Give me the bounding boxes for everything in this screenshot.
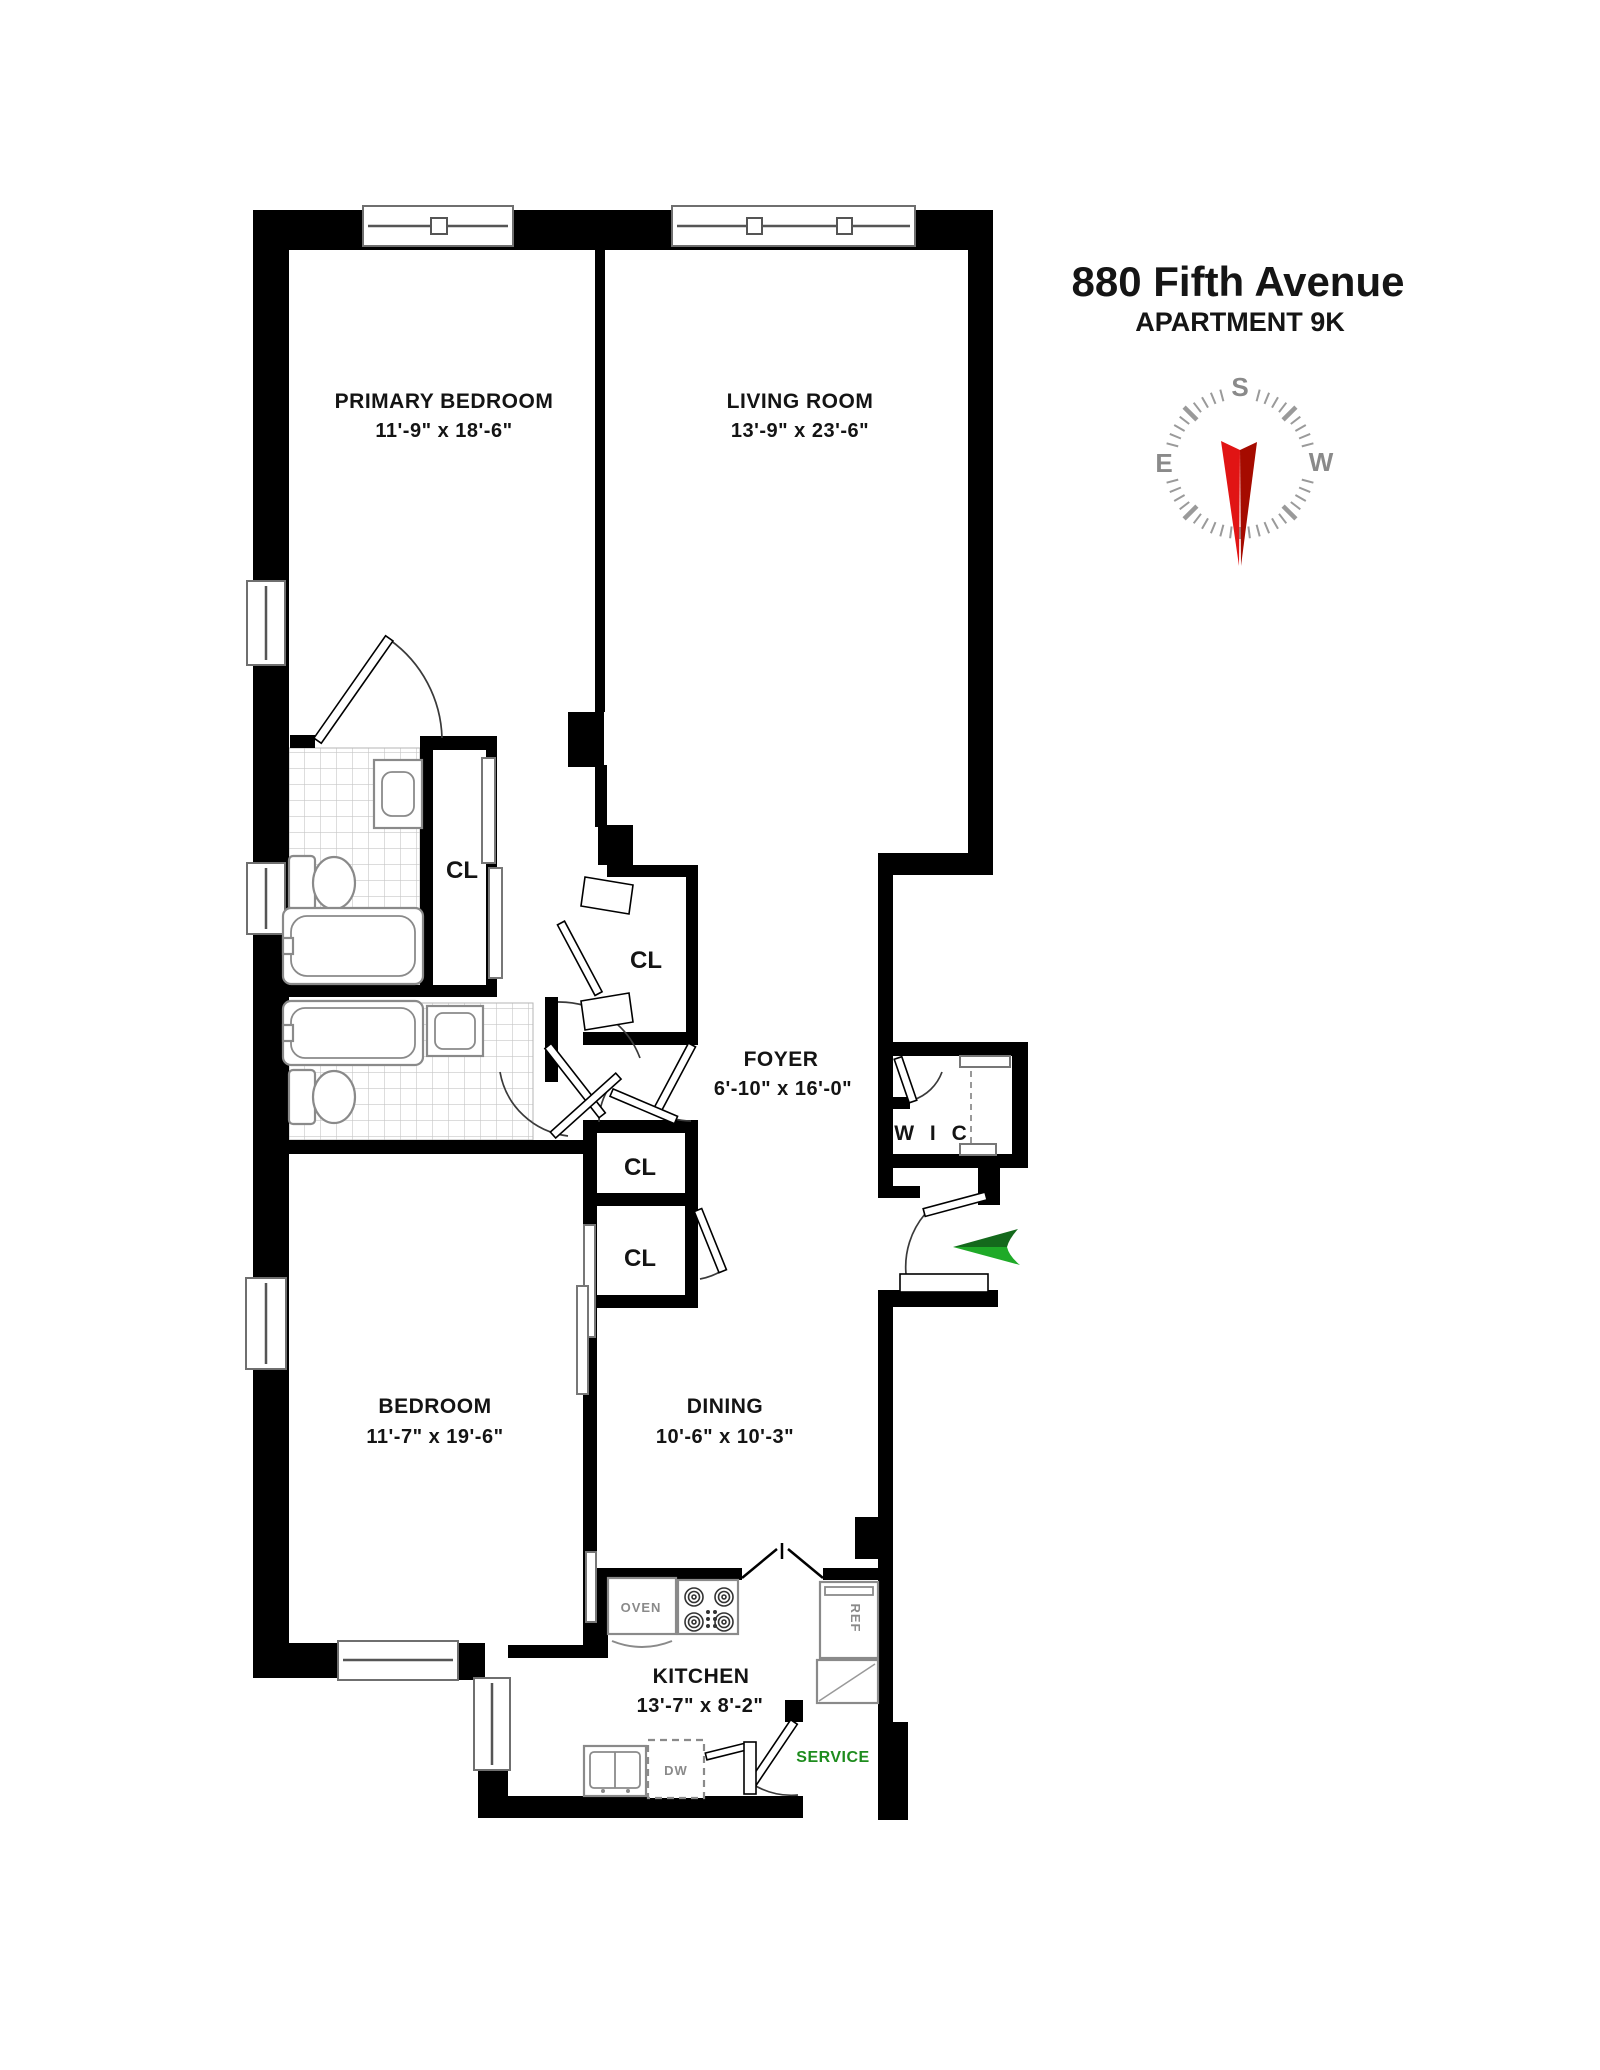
closet-shelf — [960, 1056, 1010, 1067]
cabinet-door-leaf — [705, 1743, 747, 1760]
ref-label: REF — [848, 1604, 863, 1633]
compass-tick — [1170, 488, 1181, 493]
compass-rose-icon: S E W — [1155, 372, 1333, 566]
entry-arrow-dark-half — [953, 1229, 1018, 1247]
bedroom-label: BEDROOM — [378, 1395, 491, 1418]
kitchen-double-doors — [742, 1543, 823, 1578]
compass-tick — [1291, 417, 1301, 424]
bedroom-dims: 11'-7" x 19'-6" — [366, 1426, 503, 1448]
compass-tick — [1174, 495, 1184, 501]
compass-tick — [1180, 502, 1190, 509]
oven-handle — [612, 1641, 672, 1647]
closet-sliding-panel — [489, 868, 502, 978]
compass-tick — [1295, 425, 1305, 431]
compass-tick — [1302, 443, 1314, 446]
foyer-door-leaf — [652, 1043, 696, 1116]
compass-tick — [1265, 393, 1270, 404]
closet-shelf — [960, 1144, 996, 1155]
compass-tick — [1220, 390, 1223, 402]
compass-tick — [1194, 403, 1201, 413]
sink-faucet-dot — [601, 1789, 605, 1793]
compass-tick — [1184, 407, 1197, 420]
kitchen-label: KITCHEN — [653, 1665, 750, 1688]
compass-tick — [1279, 403, 1286, 413]
wic-door-leaf — [894, 1057, 917, 1103]
compass-needle-dark — [1240, 442, 1257, 566]
compass-west-label: W — [1309, 447, 1334, 477]
window-bottom-bedroom — [338, 1641, 458, 1680]
window-left-primary-bedroom — [247, 581, 285, 665]
bedroom-sliding-panel — [586, 1552, 596, 1622]
compass-tick — [1211, 393, 1216, 404]
closet-door-leaf — [557, 921, 602, 995]
kitchen-dims: 13'-7" x 8'-2" — [637, 1695, 764, 1717]
compass-tick — [1279, 514, 1286, 524]
dw-label: DW — [664, 1763, 688, 1778]
closet-bifold-label: CL — [630, 947, 662, 974]
compass-tick — [1202, 518, 1208, 528]
toilet-tank — [289, 856, 315, 910]
bedroom-sliding-panel — [577, 1286, 588, 1394]
compass-tick — [1272, 518, 1278, 528]
sink-faucet-dot — [626, 1789, 630, 1793]
compass-tick — [1295, 495, 1305, 501]
sliding-door-panels — [482, 758, 596, 1622]
page-title: 880 Fifth Avenue — [1072, 258, 1405, 305]
compass-tick — [1299, 488, 1310, 493]
window-top-primary-bedroom — [363, 206, 513, 246]
entry-arrow-light-half — [953, 1247, 1020, 1265]
window-left-bedroom — [246, 1278, 286, 1369]
closet-upper-label: CL — [624, 1154, 656, 1181]
compass-south-label: S — [1231, 372, 1248, 402]
page-subtitle: APARTMENT 9K — [1135, 307, 1345, 337]
compass-tick — [1257, 525, 1260, 537]
primary-bedroom-dims: 11'-9" x 18'-6" — [375, 420, 512, 442]
window-left-bathroom — [247, 863, 285, 934]
bathroom1-door-leaf — [314, 636, 393, 744]
foyer-label: FOYER — [744, 1048, 819, 1071]
living-room-dims: 13'-9" x 23'-6" — [731, 420, 869, 442]
toilet-bowl — [313, 1071, 355, 1123]
toilet-bowl — [313, 857, 355, 909]
compass-tick — [1283, 506, 1296, 519]
window-mullion — [747, 218, 762, 234]
primary-bedroom-label: PRIMARY BEDROOM — [335, 390, 554, 413]
compass-tick — [1299, 434, 1310, 439]
closet-lower-door-leaf — [694, 1209, 726, 1273]
compass-tick — [1167, 443, 1179, 446]
oven-label: OVEN — [621, 1600, 662, 1615]
compass-tick — [1170, 434, 1181, 439]
bathtub-faucet — [283, 1025, 293, 1041]
toilet-tank — [289, 1070, 315, 1124]
window-mullion — [431, 218, 447, 234]
compass-tick — [1265, 522, 1270, 533]
closet-sliding-panel — [482, 758, 495, 863]
dining-label: DINING — [687, 1395, 764, 1418]
compass-tick — [1230, 527, 1232, 539]
compass-tick — [1302, 480, 1314, 483]
compass-tick — [1257, 390, 1260, 402]
compass-tick — [1167, 480, 1179, 483]
wic-label: W I C — [894, 1122, 972, 1145]
entry-arrow-icon — [953, 1229, 1020, 1265]
service-label: SERVICE — [796, 1749, 869, 1766]
compass-tick — [1184, 506, 1197, 519]
entry-door-leaf — [923, 1192, 987, 1216]
window-top-living-room — [672, 206, 915, 246]
living-room-label: LIVING ROOM — [727, 390, 874, 413]
window-bottom-kitchen — [474, 1678, 510, 1770]
compass-tick — [1248, 527, 1250, 539]
window-mullion — [837, 218, 852, 234]
bifold-closet-door-upper — [581, 877, 633, 914]
closet-lower-label: CL — [624, 1245, 656, 1272]
bifold-closet-door-lower — [581, 993, 633, 1030]
floor-plan-page: S E W 880 Fifth Avenue APARTMENT 9K PRIM… — [0, 0, 1600, 2070]
floor-plan-drawing: S E W 880 Fifth Avenue APARTMENT 9K PRIM… — [0, 0, 1600, 2070]
compass-tick — [1174, 425, 1184, 431]
compass-tick — [1202, 397, 1208, 407]
entry-threshold — [900, 1274, 988, 1292]
compass-needle-light — [1221, 441, 1240, 566]
compass-tick — [1194, 514, 1201, 524]
compass-tick — [1283, 407, 1296, 420]
compass-east-label: E — [1155, 448, 1172, 478]
compass-tick — [1291, 502, 1301, 509]
counter-end-panel — [744, 1742, 756, 1794]
compass-ticks — [1167, 390, 1314, 539]
compass-tick — [1272, 397, 1278, 407]
dining-dims: 10'-6" x 10'-3" — [656, 1426, 794, 1448]
compass-tick — [1211, 522, 1216, 533]
closet-hall-label: CL — [446, 857, 478, 884]
compass-tick — [1220, 525, 1223, 537]
bathtub-faucet — [283, 938, 293, 954]
bathtub — [283, 908, 423, 984]
foyer-dims: 6'-10" x 16'-0" — [714, 1078, 852, 1100]
bathtub — [283, 1001, 423, 1065]
compass-tick — [1180, 417, 1190, 424]
